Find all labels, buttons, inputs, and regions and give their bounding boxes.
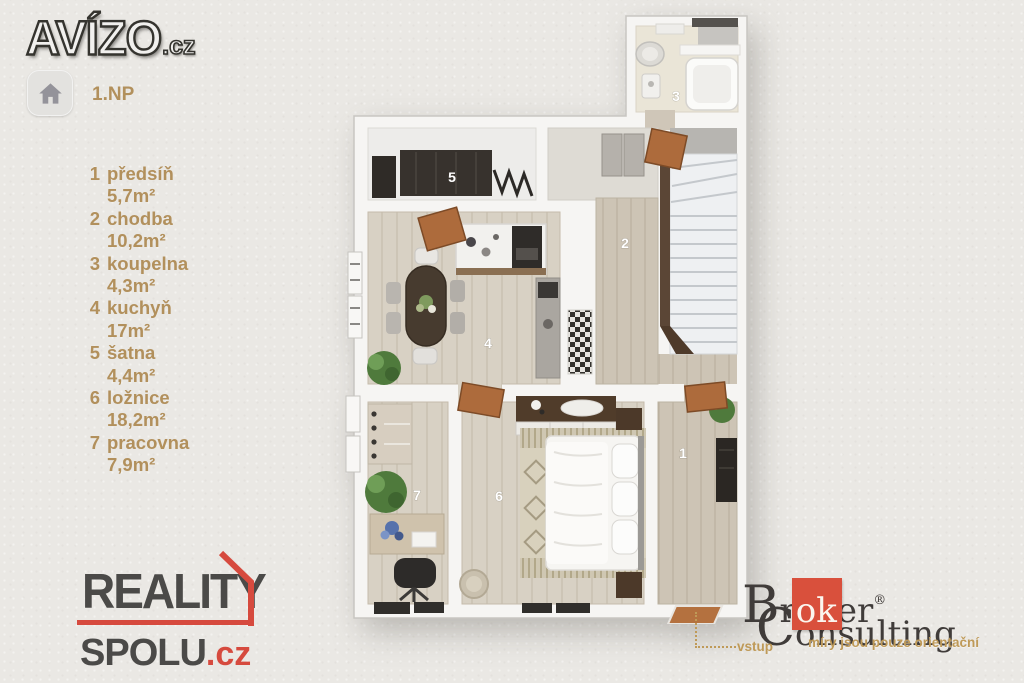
cabinet: [372, 156, 396, 198]
roof-line: [218, 550, 260, 628]
legend-area: 4,4m²: [88, 365, 189, 387]
legend-item: 1předsíň 5,7m²: [88, 163, 189, 208]
pillow: [612, 482, 638, 516]
legend-num: 7: [88, 432, 100, 454]
reality-spolu-logo: REALITY SPOLU.cz: [74, 550, 304, 675]
legend-item: 5šatna 4,4m²: [88, 342, 189, 387]
home-icon: [37, 80, 64, 107]
tiled-nook: [568, 310, 592, 374]
chair: [413, 348, 437, 364]
legend-num: 2: [88, 208, 100, 230]
entrance-annotation: vstup: [737, 639, 773, 654]
closet-door: [602, 134, 622, 176]
floorplan-viewer[interactable]: 1 2 3 4 5 6 7: [340, 12, 755, 624]
room-number: 4: [484, 335, 492, 351]
legend-name: ložnice: [107, 387, 170, 409]
room-bedroom: [460, 396, 646, 604]
legend-item: 7pracovna 7,9m²: [88, 432, 189, 477]
dotted-leader-horizontal: [698, 646, 736, 648]
door-bathroom: [645, 129, 687, 170]
legend-name: kuchyň: [107, 297, 172, 319]
home-button[interactable]: [27, 70, 73, 116]
window: [348, 252, 362, 294]
room-closet: [368, 128, 536, 200]
red-underline: [77, 620, 253, 625]
room-number: 3: [672, 88, 680, 104]
page: AVÍZO.cz 1.NP 1předsíň 5,7m² 2chodba 10,…: [0, 0, 1024, 683]
reality-spolu-line2: SPOLU.cz: [80, 632, 251, 675]
legend-num: 3: [88, 253, 100, 275]
bathroom-window: [692, 18, 738, 27]
legend-name: předsíň: [107, 163, 174, 185]
room-number: 1: [679, 445, 687, 461]
broker-highlight: ok: [796, 591, 837, 631]
room-entry-hall: [658, 397, 737, 604]
closet-door: [624, 134, 644, 176]
window: [346, 436, 360, 472]
headboard: [638, 436, 644, 570]
chair: [386, 312, 401, 334]
room-number: 7: [413, 487, 421, 503]
room-office: [365, 402, 448, 604]
room-number: 6: [495, 488, 503, 504]
avizo-logo-text: AVÍZO: [26, 9, 161, 65]
nightstand: [616, 408, 642, 430]
legend-num: 6: [88, 387, 100, 409]
window: [522, 603, 552, 613]
legend-item: 3koupelna 4,3m²: [88, 253, 189, 298]
window: [348, 296, 362, 338]
legend-num: 1: [88, 163, 100, 185]
stair-banister: [660, 158, 670, 326]
wardrobe: [400, 150, 492, 196]
reality-spolu-line2-text: SPOLU: [80, 632, 206, 674]
legend-item: 4kuchyň 17m²: [88, 297, 189, 342]
chair: [450, 312, 465, 334]
room-legend: 1předsíň 5,7m² 2chodba 10,2m² 3koupelna …: [88, 163, 189, 477]
legend-item: 2chodba 10,2m²: [88, 208, 189, 253]
pillow: [612, 444, 638, 478]
floor-label: 1.NP: [92, 84, 134, 106]
nightstand: [616, 572, 642, 598]
office-chair: [394, 558, 436, 588]
legend-name: pracovna: [107, 432, 189, 454]
legend-num: 4: [88, 297, 100, 319]
legend-area: 18,2m²: [88, 409, 189, 431]
disclaimer-text: míry jsou pouze orientační: [808, 635, 1024, 650]
window: [414, 602, 444, 613]
chair: [450, 280, 465, 302]
floorplan: 1 2 3 4 5 6 7: [340, 12, 755, 624]
room-number: 5: [448, 169, 456, 185]
hall-cabinet: [716, 438, 737, 502]
pillow: [612, 520, 638, 554]
legend-area: 17m²: [88, 320, 189, 342]
legend-area: 7,9m²: [88, 454, 189, 476]
registered-mark: ®: [873, 593, 886, 608]
chair: [386, 282, 401, 304]
window: [374, 602, 410, 614]
window: [346, 396, 360, 432]
legend-name: šatna: [107, 342, 155, 364]
avizo-logo: AVÍZO.cz: [26, 10, 196, 65]
legend-name: koupelna: [107, 253, 188, 275]
legend-name: chodba: [107, 208, 173, 230]
chair: [415, 248, 438, 264]
legend-item: 6ložnice 18,2m²: [88, 387, 189, 432]
dotted-leader-vertical: [695, 612, 697, 648]
coffee-machine: [512, 226, 542, 268]
window: [556, 603, 590, 613]
avizo-logo-tld: .cz: [162, 32, 195, 60]
door-entry-hall: [685, 382, 727, 412]
legend-area: 4,3m²: [88, 275, 189, 297]
legend-area: 5,7m²: [88, 185, 189, 207]
room-number: 2: [621, 235, 629, 251]
legend-num: 5: [88, 342, 100, 364]
legend-area: 10,2m²: [88, 230, 189, 252]
broker-consulting-logo: Broker® Consulting vstup míry jsou pouze…: [690, 584, 1020, 679]
bathroom-doorway: [645, 110, 675, 130]
reality-spolu-tld: .cz: [206, 635, 251, 673]
